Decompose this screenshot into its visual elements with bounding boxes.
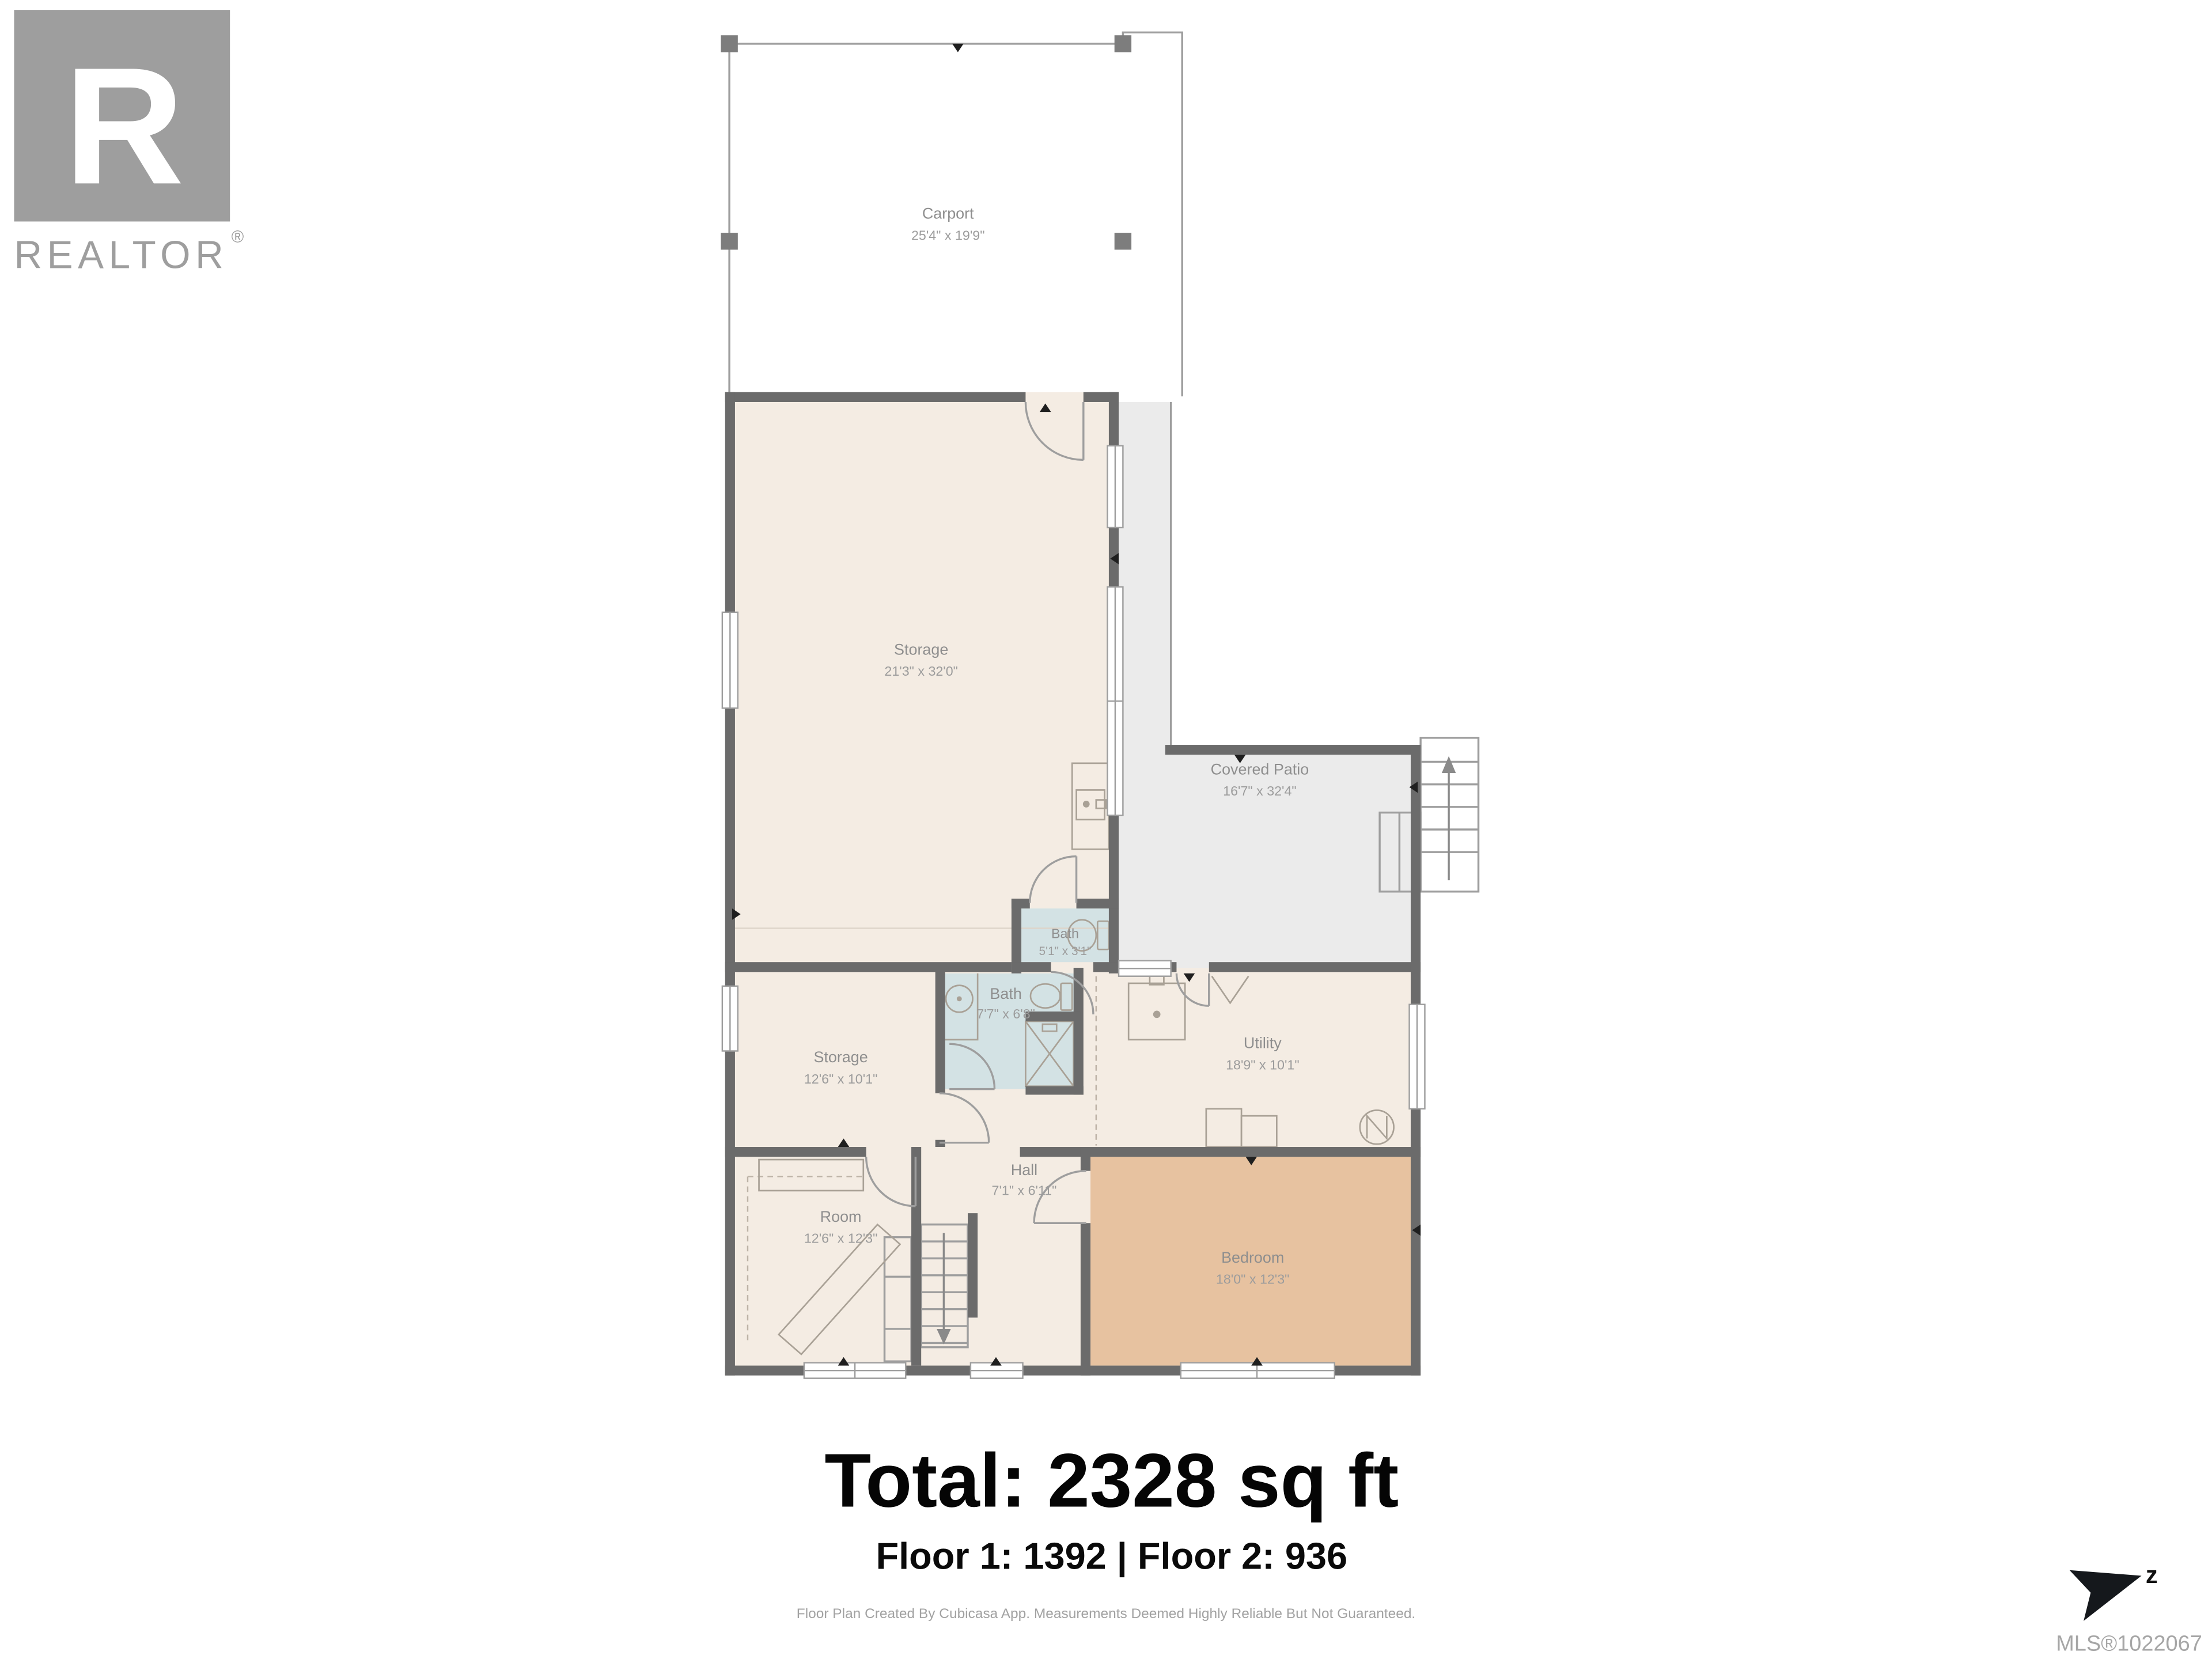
storage-floor xyxy=(725,392,1119,974)
room-label-carport: Carport xyxy=(922,205,974,222)
carport-post xyxy=(721,35,737,52)
room-dims-carport: 25'4" x 19'9" xyxy=(911,228,985,243)
window xyxy=(1119,961,1171,976)
room-dims-bath: 7'7" x 6'8" xyxy=(976,1006,1035,1021)
room-dims-storage-lower: 12'6" x 10'1" xyxy=(804,1071,878,1086)
realtor-logo-text: REALTOR xyxy=(14,233,228,276)
realtor-logo: R REALTOR ® xyxy=(14,10,244,276)
window xyxy=(1107,446,1123,528)
room-dims-room: 12'6" x 12'3" xyxy=(804,1231,878,1246)
mls-number: MLS®1022067 xyxy=(2056,1631,2202,1656)
floorplan-canvas: R REALTOR ® xyxy=(0,0,2212,1659)
window xyxy=(722,986,738,1051)
wall-segment xyxy=(725,1366,804,1376)
wall-segment xyxy=(725,392,1026,402)
wall-segment xyxy=(725,962,1012,972)
room-dims-bath-small: 5'1" x 3'1" xyxy=(1039,945,1092,958)
window xyxy=(722,612,738,709)
room-label-room: Room xyxy=(820,1208,862,1225)
wall-segment xyxy=(1171,962,1177,972)
wall-segment xyxy=(1025,1086,1083,1095)
covered-patio-floor xyxy=(1119,745,1415,968)
compass-label: z xyxy=(2146,1561,2158,1588)
wall-segment xyxy=(1093,962,1119,972)
room-label-utility: Utility xyxy=(1244,1035,1282,1052)
wall-segment xyxy=(935,968,945,1093)
room-label-storage-main: Storage xyxy=(894,641,948,658)
carport-post xyxy=(721,233,737,249)
wall-segment xyxy=(1077,899,1119,908)
wall-segment xyxy=(1020,1147,1421,1157)
room-label-bedroom: Bedroom xyxy=(1221,1249,1284,1266)
room-dims-hall: 7'1" x 6'11" xyxy=(992,1183,1057,1198)
wall-segment xyxy=(1109,392,1119,446)
wall-segment xyxy=(725,392,735,612)
room-label-bath: Bath xyxy=(990,985,1021,1002)
window xyxy=(1410,1005,1425,1109)
wall-segment xyxy=(725,1147,866,1157)
room-label-storage-lower: Storage xyxy=(813,1048,868,1066)
wall-segment xyxy=(1165,745,1421,755)
disclaimer-text: Floor Plan Created By Cubicasa App. Meas… xyxy=(797,1606,1415,1622)
wall-segment xyxy=(1081,1223,1090,1375)
patio-side-strip xyxy=(1119,402,1171,751)
wall-segment xyxy=(725,1051,735,1375)
wall-segment xyxy=(1335,1366,1421,1376)
room-dims-utility: 18'9" x 10'1" xyxy=(1226,1057,1300,1072)
wall-segment xyxy=(1012,962,1051,972)
wall-segment xyxy=(1023,1366,1181,1376)
carport-post xyxy=(1115,35,1131,52)
room-label-covered-patio: Covered Patio xyxy=(1211,760,1309,778)
room-dims-covered-patio: 16'7" x 32'4" xyxy=(1223,783,1297,798)
wall-segment xyxy=(1109,816,1119,974)
window xyxy=(1107,587,1123,816)
window xyxy=(804,1363,906,1378)
total-area-text: Total: 2328 sq ft xyxy=(824,1438,1399,1524)
wall-segment xyxy=(725,708,735,986)
wall-segment xyxy=(968,1213,978,1317)
realtor-registered-mark: ® xyxy=(232,228,244,247)
carport-post xyxy=(1115,233,1131,249)
floor-areas-text: Floor 1: 1392 | Floor 2: 936 xyxy=(876,1535,1348,1577)
room-dims-storage-main: 21'3" x 32'0" xyxy=(884,664,958,679)
wall-segment xyxy=(1081,1147,1090,1171)
wall-segment xyxy=(1209,962,1421,972)
wall-segment xyxy=(906,1366,971,1376)
room-label-hall: Hall xyxy=(1011,1161,1037,1179)
room-label-bath-small: Bath xyxy=(1051,926,1079,941)
realtor-logo-letter: R xyxy=(64,33,184,219)
room-dims-bedroom: 18'0" x 12'3" xyxy=(1216,1272,1290,1287)
